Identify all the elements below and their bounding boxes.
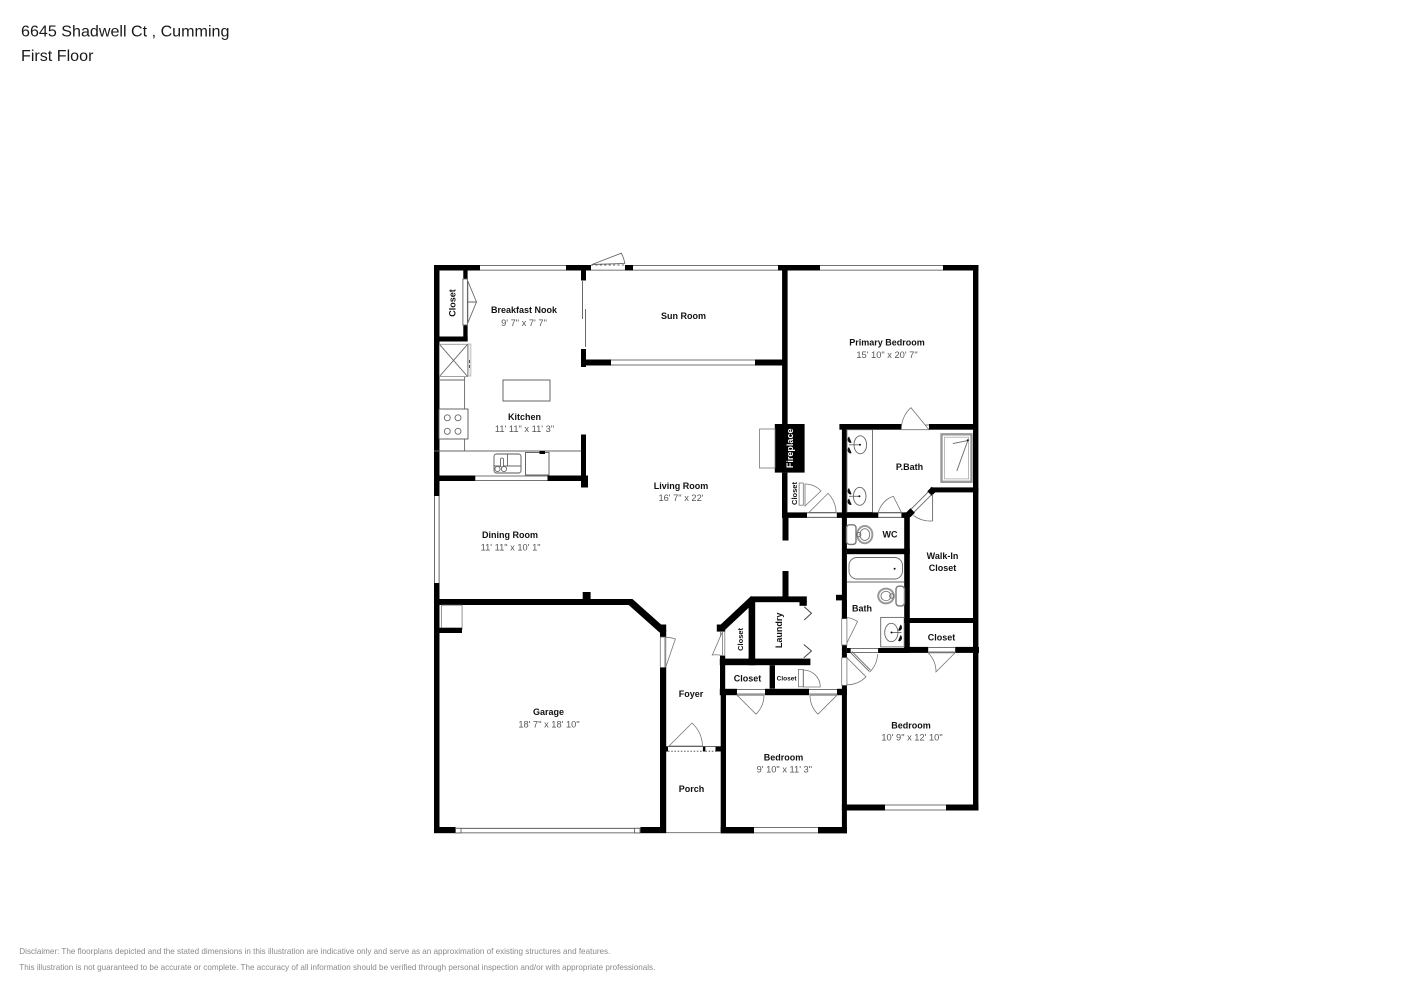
svg-text:Bedroom: Bedroom	[764, 752, 804, 762]
svg-text:9' 10" x 11' 3": 9' 10" x 11' 3"	[757, 765, 812, 775]
svg-text:Laundry: Laundry	[774, 613, 784, 649]
svg-text:Dining Room: Dining Room	[482, 530, 538, 540]
svg-text:WC: WC	[883, 530, 898, 540]
svg-text:Breakfast Nook: Breakfast Nook	[491, 305, 558, 315]
svg-text:Closet: Closet	[448, 289, 458, 317]
svg-text:Kitchen: Kitchen	[508, 412, 541, 422]
svg-text:Closet: Closet	[734, 673, 762, 683]
svg-text:Garage: Garage	[533, 707, 564, 717]
svg-text:Closet: Closet	[929, 563, 957, 573]
svg-text:Disclaimer: The floorplans dep: Disclaimer: The floorplans depicted and …	[19, 947, 610, 956]
svg-text:This illustration is not guara: This illustration is not guaranteed to b…	[19, 963, 655, 972]
svg-text:First Floor: First Floor	[21, 47, 94, 65]
svg-text:Closet: Closet	[928, 632, 956, 642]
svg-text:Closet: Closet	[736, 627, 745, 650]
svg-text:15' 10" x 20' 7": 15' 10" x 20' 7"	[856, 350, 917, 360]
svg-text:10' 9" x 12' 10": 10' 9" x 12' 10"	[881, 733, 942, 743]
svg-text:11' 11" x 11' 3": 11' 11" x 11' 3"	[495, 424, 554, 434]
svg-text:Bedroom: Bedroom	[891, 720, 931, 730]
svg-text:11' 11" x 10' 1": 11' 11" x 10' 1"	[481, 543, 541, 553]
svg-text:9' 7" x 7' 7": 9' 7" x 7' 7"	[501, 318, 547, 328]
svg-text:Fireplace: Fireplace	[785, 429, 795, 469]
svg-text:Living Room: Living Room	[654, 481, 709, 491]
svg-text:Closet: Closet	[777, 676, 798, 683]
svg-text:P.Bath: P.Bath	[896, 462, 923, 472]
svg-text:Porch: Porch	[679, 784, 705, 794]
svg-text:Walk-In: Walk-In	[927, 551, 959, 561]
svg-text:Primary Bedroom: Primary Bedroom	[849, 338, 925, 348]
svg-text:6645 Shadwell Ct , Cumming: 6645 Shadwell Ct , Cumming	[21, 23, 229, 41]
svg-text:Closet: Closet	[790, 482, 799, 505]
svg-text:18' 7" x 18' 10": 18' 7" x 18' 10"	[518, 720, 579, 730]
svg-text:Sun Room: Sun Room	[661, 311, 706, 321]
svg-text:16' 7" x 22': 16' 7" x 22'	[658, 493, 703, 503]
svg-text:Foyer: Foyer	[679, 689, 704, 699]
svg-text:Bath: Bath	[852, 604, 872, 614]
